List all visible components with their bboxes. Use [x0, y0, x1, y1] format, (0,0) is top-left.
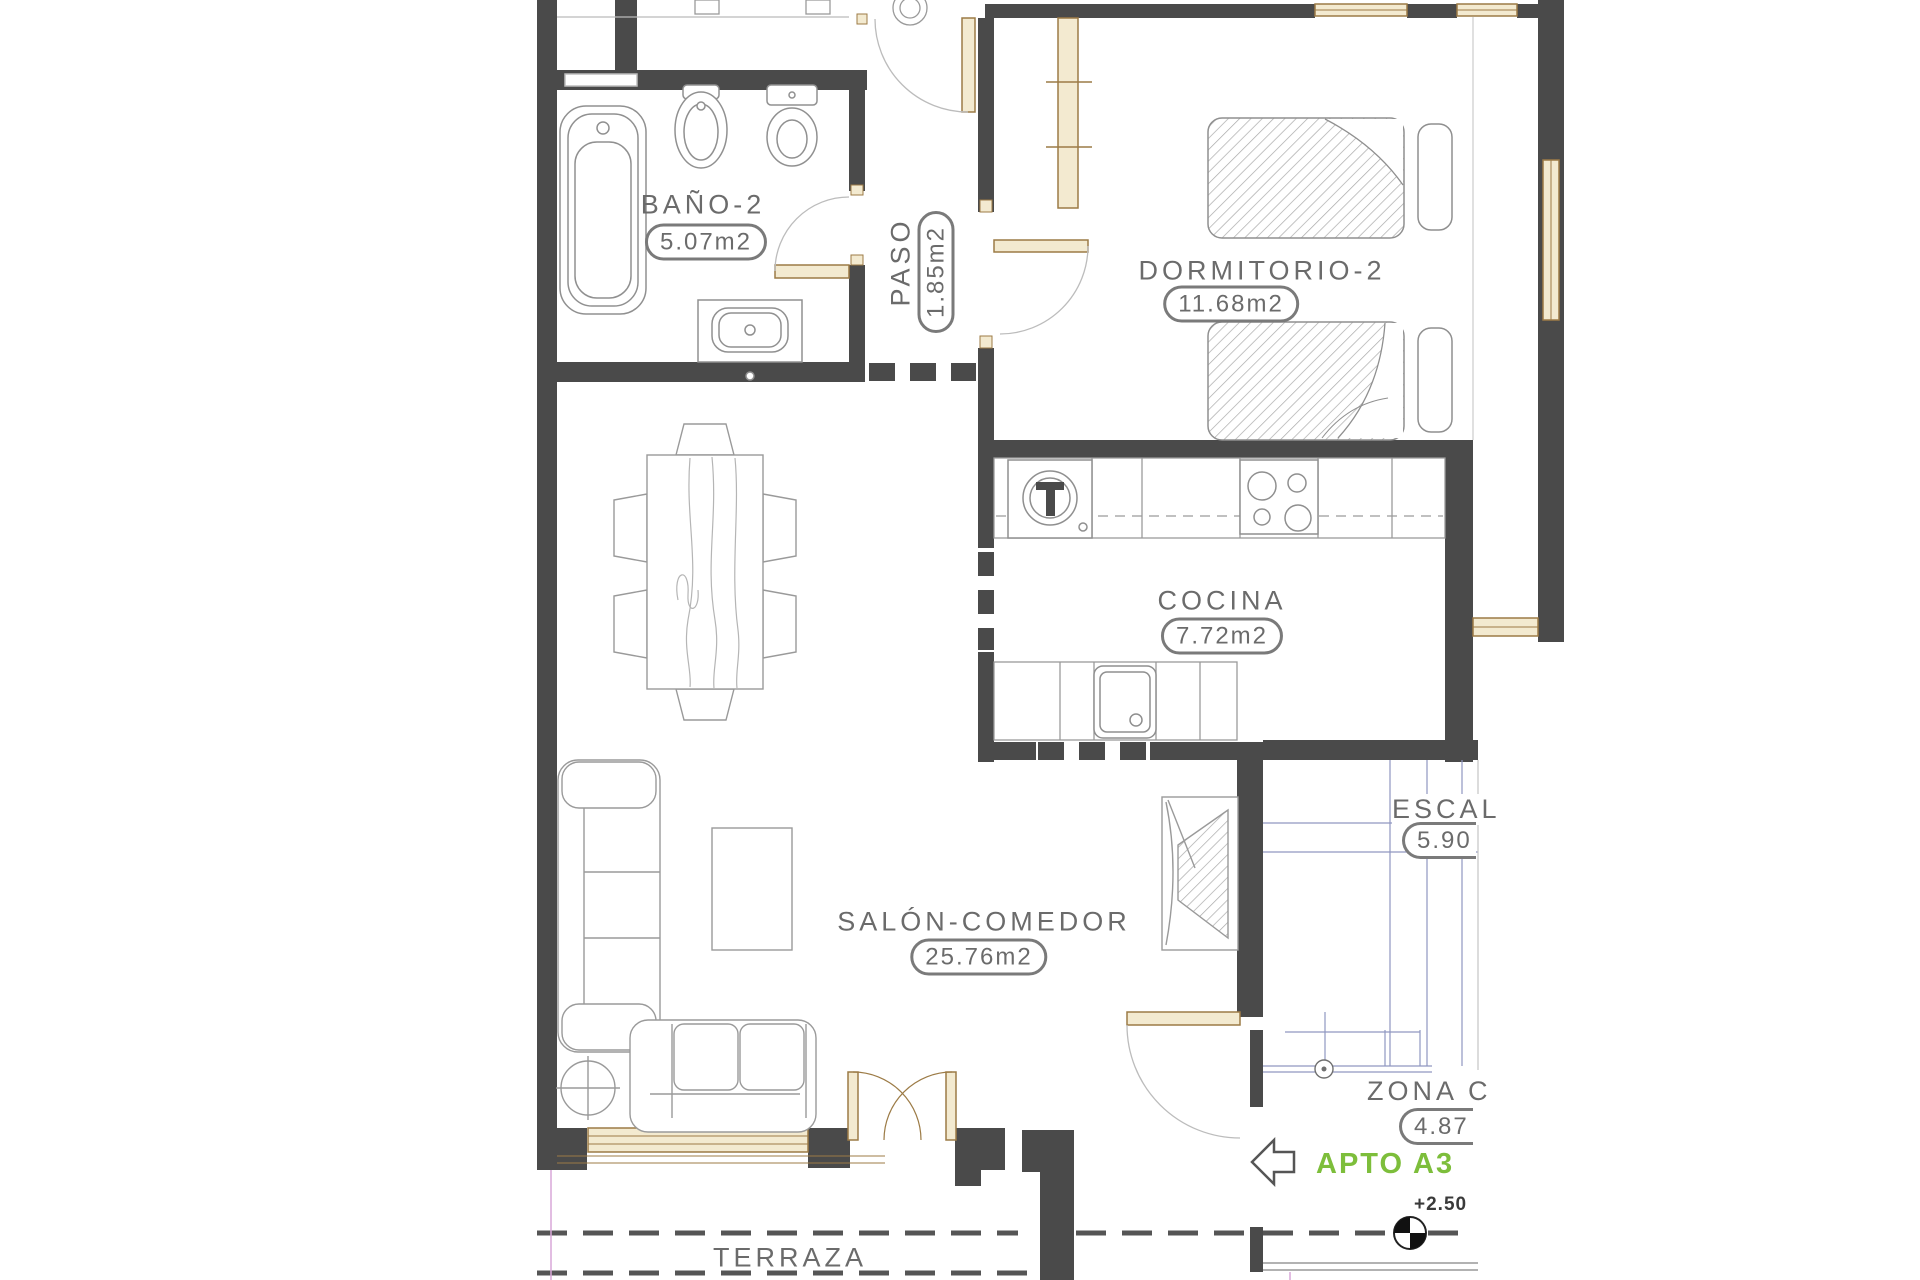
washing-machine-icon: [1008, 460, 1092, 538]
column-marker-icon: [1315, 1060, 1333, 1078]
apartment-label: APTO A3: [1316, 1148, 1454, 1181]
dining-table-icon: [614, 424, 796, 720]
room-label-dormitorio2: DORMITORIO-2: [1138, 256, 1385, 287]
site-lines: [551, 1170, 1290, 1280]
stove-icon: [1240, 460, 1318, 534]
chair-icon: [614, 590, 647, 658]
room-label-bano2: BAÑO-2: [641, 190, 766, 221]
pillow-icon: [1418, 328, 1452, 432]
zona-floor-lines: [1263, 1263, 1478, 1270]
chair-icon: [763, 494, 796, 562]
side-table-icon: [556, 1056, 620, 1120]
wardrobe-icon: [1046, 18, 1092, 208]
floor-plan-drawing: [0, 0, 1920, 1280]
chair-icon: [763, 590, 796, 658]
door-leaf-icon: [994, 240, 1088, 252]
door-leaf-icon: [848, 1072, 858, 1140]
door-leaf-icon: [962, 18, 975, 112]
pillow-icon: [1418, 124, 1452, 230]
room-area-bano2: 5.07m2: [645, 224, 767, 261]
door-arc-icon: [875, 19, 968, 112]
chair-icon: [676, 424, 734, 455]
cutoff-room-top: [557, 0, 927, 25]
room-label-escalera: ESCAL: [1392, 794, 1501, 825]
room-area-dormitorio2: 11.68m2: [1163, 286, 1299, 323]
terraza-boundary: [537, 1233, 1470, 1273]
bano-wall-window: [565, 74, 637, 86]
room-label-cocina: COCINA: [1157, 586, 1286, 617]
door-arc-icon: [884, 1072, 952, 1140]
entrance-arrow-icon: [1252, 1140, 1294, 1184]
coffee-table-icon: [712, 828, 792, 950]
bidet-icon: [675, 85, 727, 168]
room-area-zona: 4.87: [1399, 1108, 1473, 1145]
door-arc-icon: [1127, 1025, 1240, 1138]
kitchen-sink-icon: [1094, 666, 1156, 738]
bed-icon: [1208, 322, 1452, 440]
room-label-terraza: TERRAZA: [713, 1243, 867, 1274]
floor-plan: BAÑO-2 5.07m2 PASO 1.85m2 DORMITORIO-2 1…: [0, 0, 1920, 1280]
door-leaf-icon: [946, 1072, 956, 1140]
room-area-salon: 25.76m2: [910, 939, 1047, 976]
bed-icon: [1208, 118, 1452, 238]
level-marker-icon: [1394, 1217, 1426, 1249]
sofa-icon: [630, 1020, 816, 1132]
door-arc-icon: [853, 1072, 921, 1140]
tv-cabinet-icon: [1162, 797, 1238, 950]
sofa-icon: [558, 760, 660, 1052]
bathtub-icon: [560, 106, 646, 314]
level-annotation: +2.50: [1414, 1194, 1467, 1216]
room-label-salon: SALÓN-COMEDOR: [837, 907, 1131, 938]
door-leaf-icon: [775, 265, 849, 278]
door-arc-icon: [1000, 246, 1088, 334]
chair-icon: [614, 494, 647, 562]
room-label-zona: ZONA C: [1367, 1076, 1492, 1107]
room-area-cocina: 7.72m2: [1161, 618, 1283, 655]
door-leaf-icon: [1127, 1012, 1240, 1025]
toilet-icon: [767, 85, 817, 166]
room-area-escalera: 5.90: [1402, 822, 1476, 859]
door-arc-icon: [775, 197, 849, 271]
room-area-paso: 1.85m2: [918, 211, 955, 333]
room-label-paso: PASO: [886, 217, 917, 306]
chair-icon: [676, 689, 734, 720]
